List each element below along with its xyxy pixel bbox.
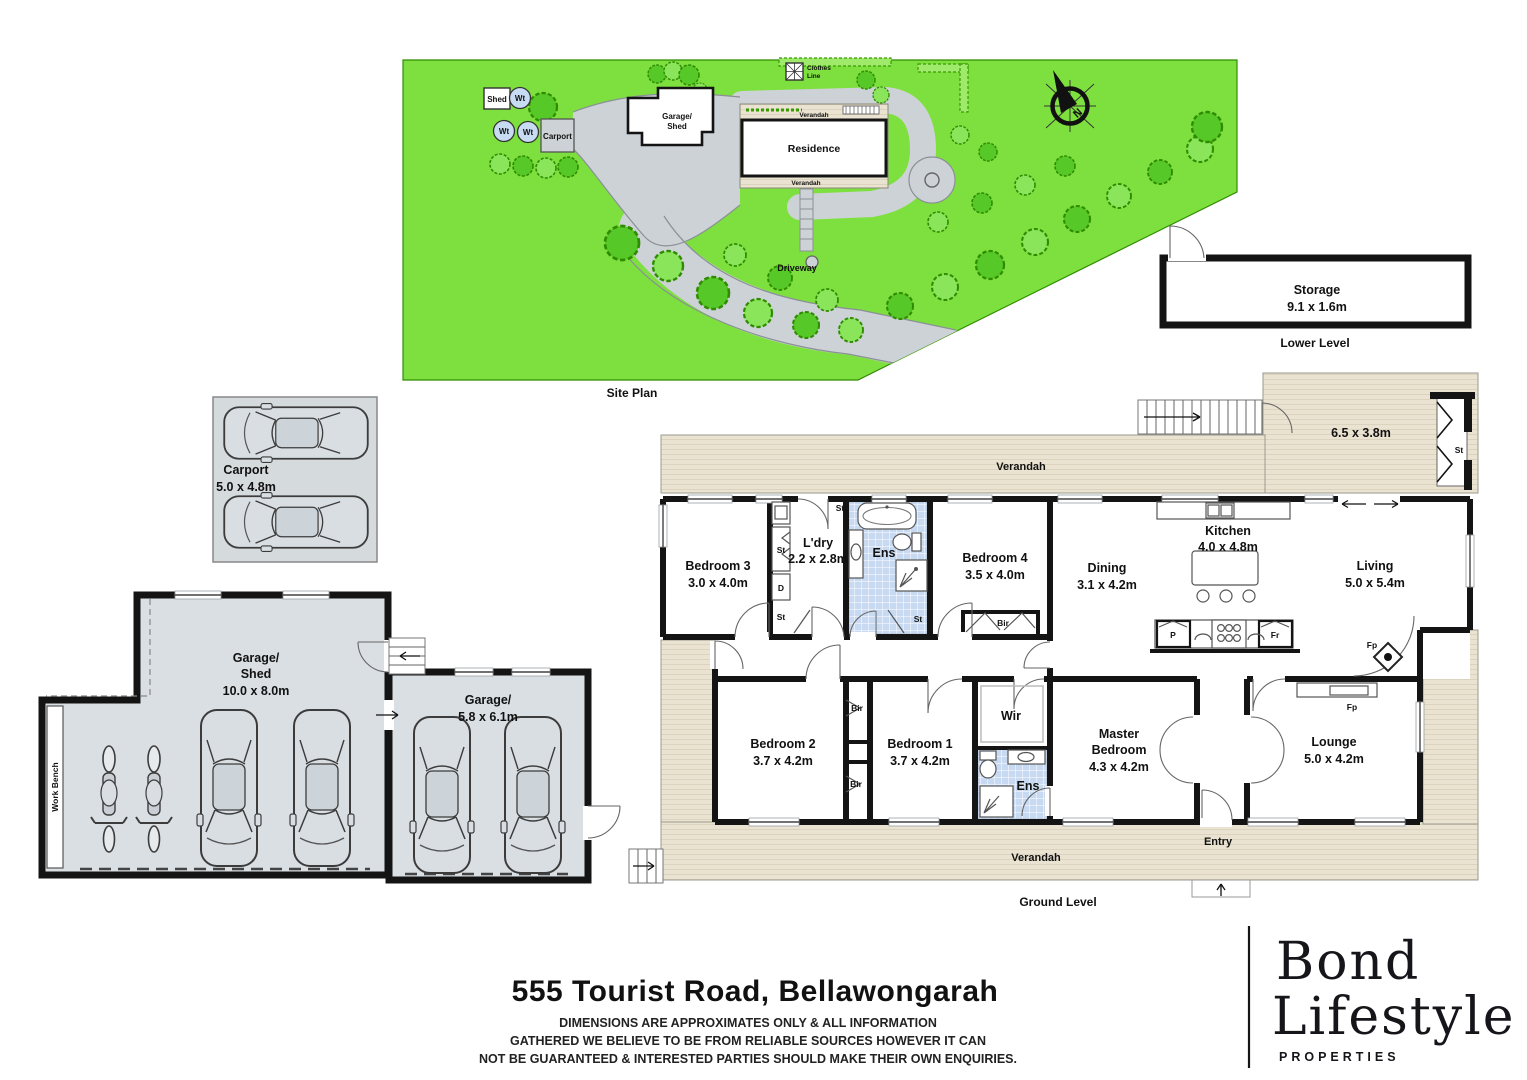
- kitchen-size: 4.0 x 4.8m: [1198, 540, 1258, 554]
- garage-shed-size: 10.0 x 8.0m: [223, 684, 290, 698]
- storage-door-gap: [1168, 251, 1206, 261]
- kitchen-island: [1192, 551, 1258, 585]
- st-label: St: [1455, 445, 1464, 455]
- st-label: St: [777, 612, 786, 622]
- garage-label: Garage/: [465, 693, 512, 707]
- site-plan-title: Site Plan: [607, 386, 658, 400]
- tree-icon: [513, 156, 533, 176]
- verandah-stairs: [1138, 400, 1262, 434]
- car-icon: [197, 710, 261, 866]
- floorplan-page: Clothes Line Shed Wt Wt Wt Carport Garag…: [0, 0, 1527, 1080]
- ens-label: Ens: [873, 546, 896, 560]
- bedroom4-label: Bedroom 4: [962, 551, 1027, 565]
- verandah-deck: [661, 640, 715, 824]
- tree-icon: [1022, 229, 1048, 255]
- bedroom3-size: 3.0 x 4.0m: [688, 576, 748, 590]
- carport-size: 5.0 x 4.8m: [216, 480, 276, 494]
- driveway-label: Driveway: [777, 263, 817, 273]
- verandah-deck: [661, 822, 1478, 880]
- tree-icon: [605, 226, 639, 260]
- porch-step: [1192, 880, 1250, 897]
- master-label2: Bedroom: [1092, 743, 1147, 757]
- master-label1: Master: [1099, 727, 1139, 741]
- hedge: [960, 64, 968, 112]
- tree-icon: [793, 312, 819, 338]
- garage-shed-label1: Garage/: [233, 651, 280, 665]
- st-label: St: [914, 614, 923, 624]
- disclaimer-line3: NOT BE GUARANTEED & INTERESTED PARTIES S…: [479, 1052, 1017, 1066]
- address-title: 555 Tourist Road, Bellawongarah: [512, 975, 999, 1008]
- water-tank-label: Wt: [499, 127, 510, 136]
- door-gap: [583, 806, 593, 840]
- site-verandah-top: Verandah: [799, 112, 828, 119]
- dryer-label: D: [778, 583, 784, 593]
- verandah-deck: [661, 435, 1265, 493]
- clothes-line-label2: Line: [807, 73, 821, 80]
- lower-level-label: Lower Level: [1280, 336, 1349, 350]
- tree-icon: [536, 158, 556, 178]
- carport-plan: Carport 5.0 x 4.8m: [213, 397, 377, 562]
- path-steps: [800, 189, 813, 251]
- tree-icon: [972, 193, 992, 213]
- master-size: 4.3 x 4.2m: [1089, 760, 1149, 774]
- pantry-label: P: [1170, 630, 1176, 640]
- clothes-line-label: Clothes: [807, 65, 831, 72]
- tree-icon: [558, 157, 578, 177]
- logo-line1: Bond: [1276, 932, 1420, 992]
- tree-icon: [839, 318, 863, 342]
- st-label: St: [777, 545, 786, 555]
- verandah-label-bottom: Verandah: [1011, 852, 1061, 864]
- tree-icon: [529, 93, 557, 121]
- tree-icon: [1148, 160, 1172, 184]
- garage-shed-label2: Shed: [241, 667, 272, 681]
- stool-icon: [1197, 590, 1209, 602]
- disclaimer-line2: GATHERED WE BELIEVE TO BE FROM RELIABLE …: [510, 1034, 986, 1048]
- logo-line3: PROPERTIES: [1279, 1050, 1400, 1064]
- lounge-size: 5.0 x 4.2m: [1304, 752, 1364, 766]
- ground-floor-plan: St: [629, 373, 1478, 909]
- dining-label: Dining: [1088, 561, 1127, 575]
- site-plan: Clothes Line Shed Wt Wt Wt Carport Garag…: [403, 58, 1237, 400]
- tree-icon: [979, 143, 997, 161]
- tree-icon: [724, 244, 746, 266]
- car-icon: [290, 710, 354, 866]
- car-icon: [410, 717, 474, 873]
- bir-label: Bir: [850, 779, 863, 789]
- bedroom4-size: 3.5 x 4.0m: [965, 568, 1025, 582]
- storage-size: 9.1 x 1.6m: [1287, 300, 1347, 314]
- site-residence-label: Residence: [788, 143, 841, 155]
- disclaimer-line1: DIMENSIONS ARE APPROXIMATES ONLY & ALL I…: [559, 1016, 937, 1030]
- kitchen-label: Kitchen: [1205, 524, 1251, 538]
- tree-icon: [679, 65, 699, 85]
- car-icon: [224, 493, 368, 552]
- tree-icon: [951, 126, 969, 144]
- site-garage-label1: Garage/: [662, 112, 693, 121]
- site-shed-label: Shed: [487, 95, 507, 104]
- tree-icon: [857, 71, 875, 89]
- site-residence: Verandah Residence Verandah: [740, 104, 888, 188]
- car-icon: [224, 404, 368, 463]
- lounge-label: Lounge: [1311, 735, 1356, 749]
- bedroom1-label: Bedroom 1: [887, 737, 952, 751]
- floorplan-drawing: Clothes Line Shed Wt Wt Wt Carport Garag…: [0, 0, 1527, 1080]
- storage-label: Storage: [1294, 283, 1341, 297]
- carport-label: Carport: [223, 463, 269, 477]
- tree-icon: [1192, 112, 1222, 142]
- toilet-icon: [912, 533, 921, 551]
- tree-icon: [1055, 156, 1075, 176]
- site-garage-label2: Shed: [667, 122, 687, 131]
- garage-size: 5.8 x 6.1m: [458, 710, 518, 724]
- car-icon: [501, 717, 565, 873]
- tree-icon: [653, 251, 683, 281]
- site-verandah-bottom: Verandah: [791, 180, 820, 187]
- living-size: 5.0 x 5.4m: [1345, 576, 1405, 590]
- tree-icon: [697, 277, 729, 309]
- storage-plan: Storage 9.1 x 1.6m Lower Level: [1163, 226, 1468, 350]
- garage-stairs: [389, 638, 425, 674]
- ldry-size: 2.2 x 2.8m: [788, 552, 848, 566]
- fp-label: Fp: [1347, 702, 1357, 712]
- clothes-line-icon: [786, 63, 803, 80]
- tree-icon: [648, 65, 666, 83]
- tree-icon: [490, 154, 510, 174]
- tree-icon: [873, 87, 889, 103]
- tree-icon: [928, 212, 948, 232]
- tree-icon: [1107, 184, 1131, 208]
- tree-icon: [744, 299, 772, 327]
- ground-level-label: Ground Level: [1019, 895, 1096, 909]
- ldry-label: L'dry: [803, 536, 833, 550]
- verandah-size-label: 6.5 x 3.8m: [1331, 426, 1391, 440]
- work-bench-label: Work Bench: [50, 762, 60, 811]
- entry-label: Entry: [1204, 836, 1233, 848]
- living-label: Living: [1357, 559, 1394, 573]
- tree-icon: [1015, 175, 1035, 195]
- agency-logo: Bond Lifestyle PROPERTIES: [1249, 926, 1516, 1068]
- bedroom3-label: Bedroom 3: [685, 559, 750, 573]
- tree-icon: [932, 274, 958, 300]
- bir-label: Bir: [997, 618, 1010, 628]
- bir-label: Bir: [851, 703, 864, 713]
- ens2-label: Ens: [1017, 779, 1040, 793]
- st-label: St: [836, 503, 845, 513]
- bedroom1-size: 3.7 x 4.2m: [890, 754, 950, 768]
- footer: 555 Tourist Road, Bellawongarah DIMENSIO…: [479, 975, 1017, 1066]
- stool-icon: [1243, 590, 1255, 602]
- fridge-label: Fr: [1271, 630, 1280, 640]
- verandah-label-top: Verandah: [996, 461, 1046, 473]
- tree-icon: [887, 293, 913, 319]
- tree-icon: [1064, 206, 1090, 232]
- tree-icon: [976, 251, 1004, 279]
- dining-size: 3.1 x 4.2m: [1077, 578, 1137, 592]
- stool-icon: [1220, 590, 1232, 602]
- site-carport-label: Carport: [543, 132, 572, 141]
- water-tank-label: Wt: [515, 94, 526, 103]
- logo-line2: Lifestyle: [1272, 987, 1516, 1047]
- toilet-icon: [980, 751, 996, 760]
- fp-label: Fp: [1367, 640, 1377, 650]
- bedroom2-size: 3.7 x 4.2m: [753, 754, 813, 768]
- left-stairs: [629, 849, 663, 883]
- bedroom2-label: Bedroom 2: [750, 737, 815, 751]
- water-tank-label: Wt: [523, 128, 534, 137]
- wir-label: Wir: [1001, 709, 1021, 723]
- tree-icon: [816, 289, 838, 311]
- garage-plan: Work Bench Garage/ Shed 10.0 x 8.0m Gara…: [42, 591, 620, 880]
